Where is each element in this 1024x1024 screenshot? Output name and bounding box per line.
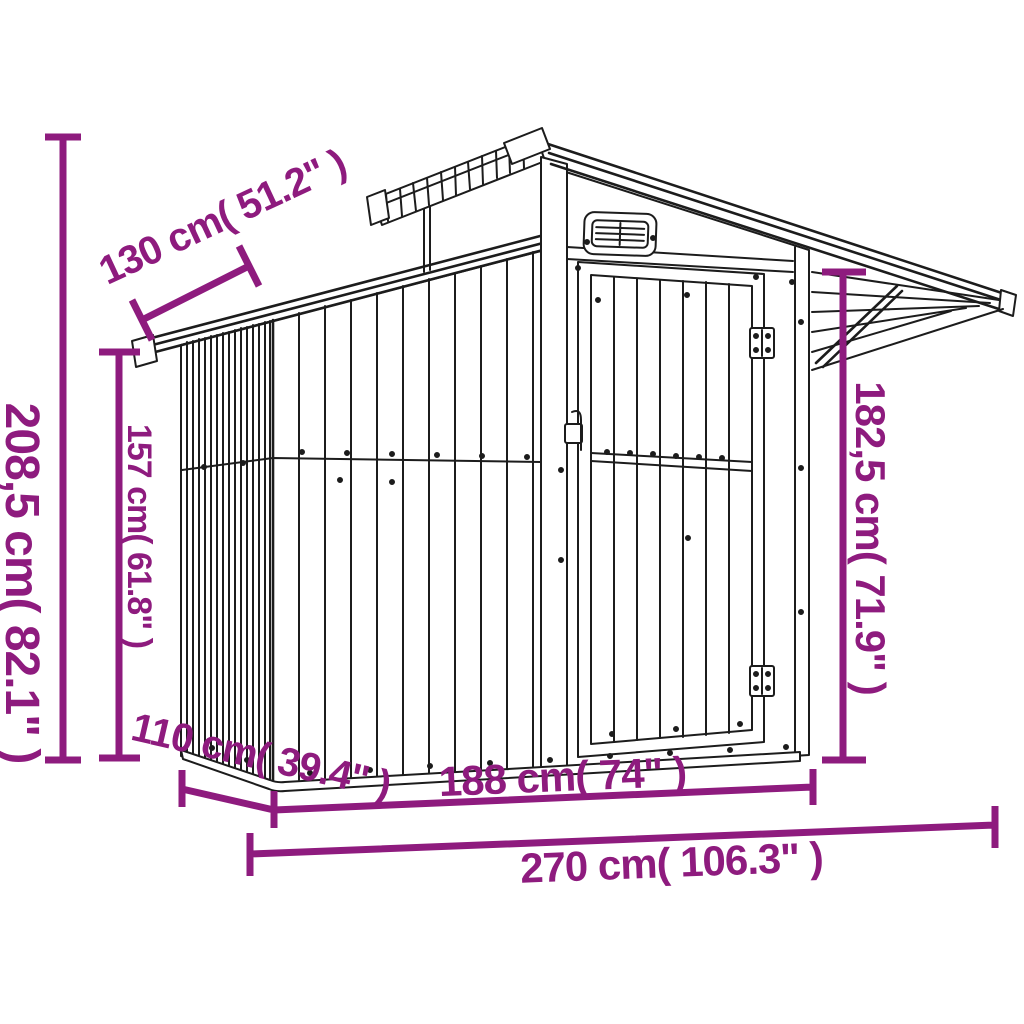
dimension-diagram: 208,5 cm( 82.1" ) 157 cm( 61.8" ) 130 cm… — [0, 0, 1024, 1024]
shed-dimension-drawing: 208,5 cm( 82.1" ) 157 cm( 61.8" ) 130 cm… — [0, 0, 1024, 1024]
dim-total-width: 270 cm( 106.3" ) — [250, 806, 995, 892]
door-hinge-bottom — [750, 666, 774, 696]
dim-roof-depth-label: 130 cm( 51.2" ) — [93, 141, 353, 293]
dim-total-height-line — [45, 137, 81, 760]
dim-total-height-label: 208,5 cm( 82.1" ) — [0, 403, 48, 764]
door — [565, 262, 774, 757]
dim-wall-height-label: 157 cm( 61.8" ) — [120, 424, 158, 648]
dim-door-side-height-label: 182,5 cm( 71.9" ) — [847, 381, 894, 694]
vent-roof-posts — [424, 206, 430, 272]
door-hinge-top — [750, 328, 774, 358]
roof-tip-cap — [999, 290, 1016, 316]
door-outer-frame — [578, 262, 764, 757]
vent-roof-left-cap — [367, 190, 389, 225]
front-left-trim — [541, 157, 567, 776]
dim-total-height: 208,5 cm( 82.1" ) — [0, 137, 81, 763]
handle-plate — [565, 424, 582, 443]
air-vent-grille — [583, 212, 656, 256]
dim-wall-height: 157 cm( 61.8" ) — [99, 352, 158, 758]
